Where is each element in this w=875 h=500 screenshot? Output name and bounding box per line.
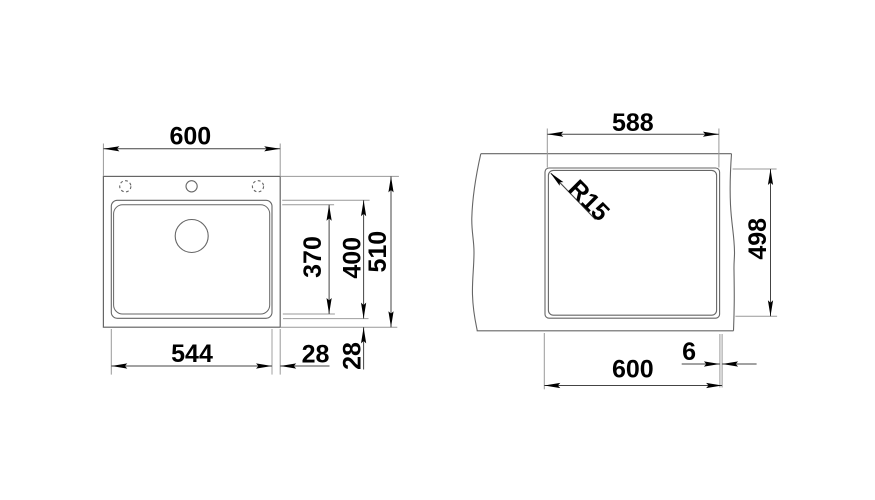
- svg-text:370: 370: [299, 236, 327, 278]
- svg-text:28: 28: [302, 341, 330, 369]
- svg-text:600: 600: [169, 123, 211, 151]
- svg-text:28: 28: [339, 342, 367, 370]
- svg-text:400: 400: [338, 237, 366, 279]
- svg-text:544: 544: [171, 340, 213, 368]
- svg-text:588: 588: [612, 109, 654, 137]
- svg-text:600: 600: [612, 356, 654, 384]
- svg-text:6: 6: [682, 338, 696, 366]
- svg-text:510: 510: [364, 231, 392, 273]
- svg-text:R15: R15: [563, 175, 615, 227]
- svg-text:498: 498: [744, 218, 772, 260]
